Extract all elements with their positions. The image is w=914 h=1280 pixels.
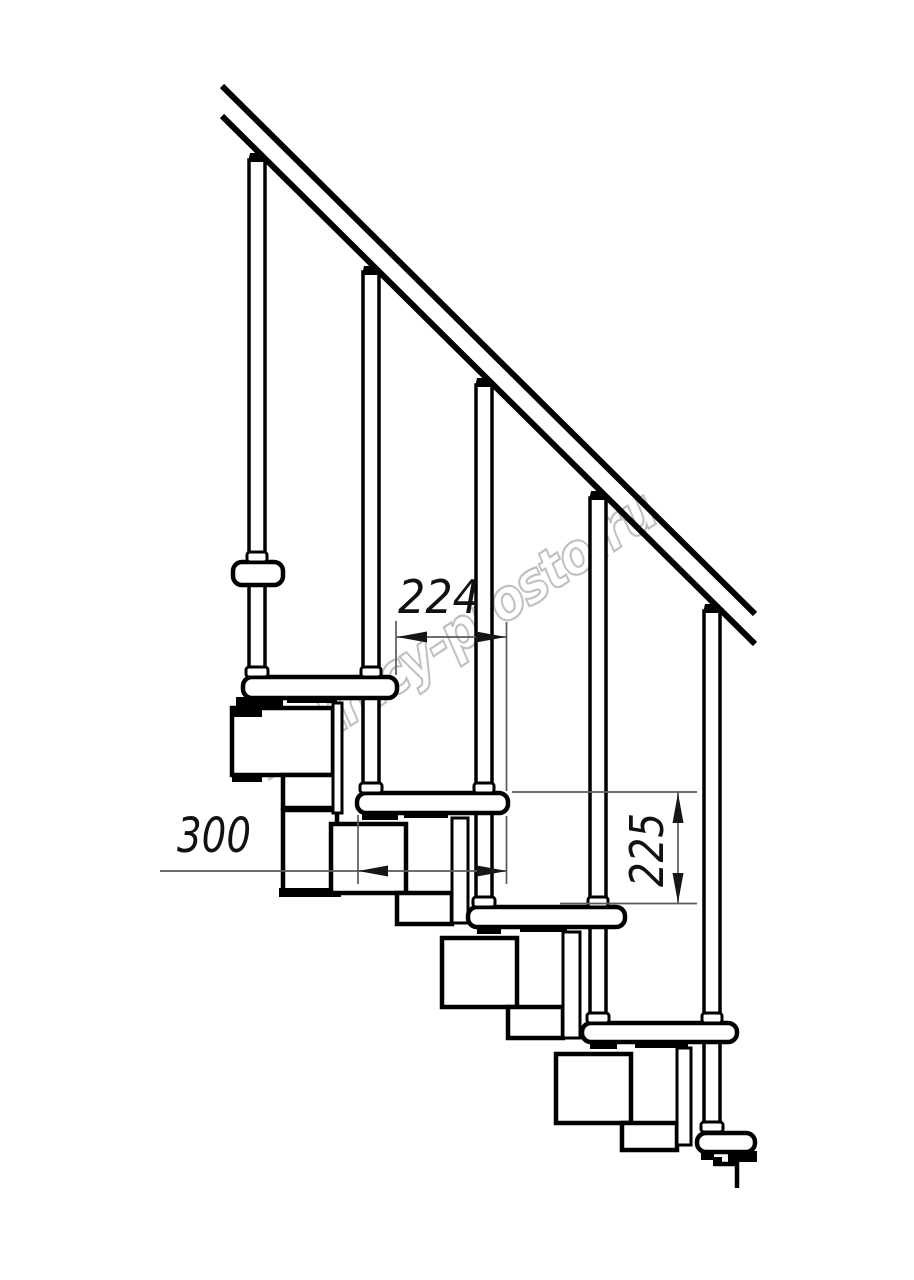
module-box [331, 824, 406, 893]
tread-2 [357, 793, 508, 813]
module-box [556, 1054, 631, 1123]
tread-1 [243, 677, 397, 698]
module-extension [622, 1123, 677, 1150]
tread-3 [468, 907, 625, 927]
module-bracket [713, 1157, 722, 1166]
collar [247, 552, 267, 562]
drawing-canvas: lestnicy-prosto.ru [0, 0, 914, 1280]
flange [360, 783, 382, 793]
flange [246, 667, 268, 677]
flange [473, 897, 495, 907]
flange [701, 1122, 723, 1132]
module-box [442, 938, 517, 1007]
staircase-drawing: lestnicy-prosto.ru [0, 0, 914, 1280]
baluster-shaft-1 [249, 160, 265, 669]
dimension-label-300: 300 [177, 808, 251, 864]
module-extension [397, 893, 452, 924]
bracket [232, 708, 262, 717]
module-connector [714, 1164, 737, 1188]
tread-4 [582, 1023, 737, 1042]
tread-stub-bottom [697, 1133, 755, 1152]
dimension-label-224: 224 [398, 570, 480, 624]
module-connector [563, 932, 580, 1038]
collar [702, 1013, 722, 1023]
baluster-shaft-4 [590, 498, 606, 1015]
module-connector [677, 1048, 691, 1145]
collar [361, 667, 381, 677]
module-connector [333, 703, 342, 813]
dimension-label-225: 225 [620, 813, 674, 887]
collar [474, 783, 494, 793]
baluster-shaft-5 [704, 611, 720, 1124]
baluster-shaft-2 [363, 272, 379, 785]
collar [588, 897, 608, 907]
tread-stub-top [233, 562, 283, 585]
bracket [232, 773, 262, 782]
arrowhead-down [673, 873, 684, 903]
module-extension [508, 1007, 563, 1038]
flange [587, 1013, 609, 1023]
module-extension [283, 775, 338, 808]
arrowhead-up [673, 793, 684, 823]
module-box [232, 708, 333, 775]
